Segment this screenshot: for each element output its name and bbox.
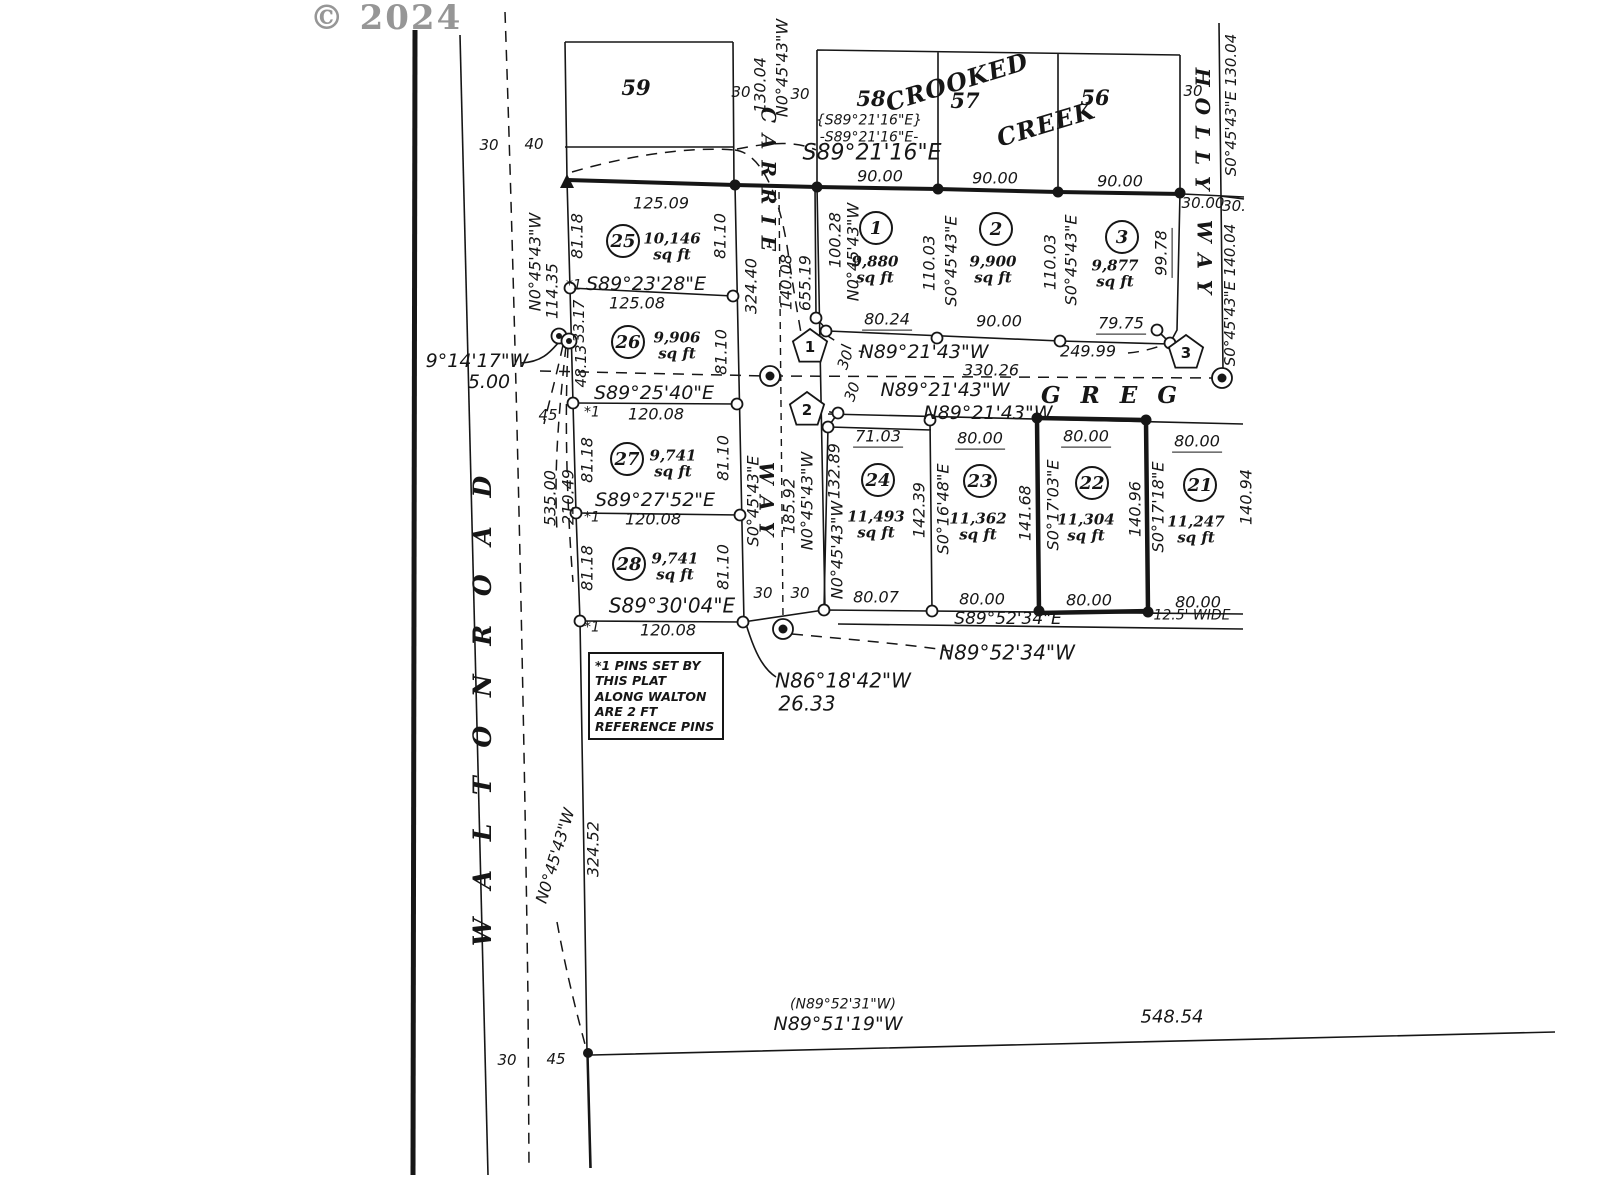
bearing-leader-south [792, 634, 950, 651]
lot-27-number: 27 [610, 442, 644, 476]
label-big2-131: N86°18'42"W [775, 671, 911, 692]
leader-n861842 [746, 624, 776, 677]
label-smi-135: (N89°52'31"W) [790, 998, 896, 1013]
label-big2-120: S89°30'04"E [609, 596, 735, 617]
label-brg-126: 5.00 [468, 373, 510, 393]
label-dimu-61: 80.00 [1061, 429, 1111, 448]
note-line: *1 PINS SET BY [595, 658, 717, 673]
lot-3-area: 9,877 sq ft [1092, 258, 1139, 290]
label-dim-111: 81.18 [580, 437, 597, 483]
label-dim-46: 90.00 [976, 314, 1022, 331]
label-sm-18: 30 [731, 85, 750, 101]
label-brg-102: S89°23'28"E [586, 275, 706, 295]
lot-24-number: 24 [861, 463, 895, 497]
label-dimu-62: 80.00 [1172, 434, 1222, 453]
label-dim15-28: S0°45'43"E 140.04 [1223, 224, 1239, 367]
label-dim-70: S0°17'18"E [1151, 462, 1168, 553]
curve-marker-3: 3 [1181, 346, 1191, 362]
label-dim-86: 140.94 [1239, 469, 1256, 525]
label-dim-107: 81.10 [714, 329, 731, 375]
label-smi-116: *1 [584, 511, 600, 526]
label-dim18-137: 548.54 [1141, 1009, 1204, 1028]
label-dim-114: 210.49 [561, 469, 578, 525]
label-dim-50: 330.26 [963, 363, 1019, 380]
plat-map-page: © 2024304059585756CROOKEDCREEK{S89°21'16… [0, 0, 1600, 1200]
label-brg17-83: S89°52'34"E [954, 611, 1061, 629]
label-dim-104: 125.08 [609, 296, 665, 313]
label-dim-38: 100.28 [828, 212, 845, 268]
lot-28-area: 9,741 sq ft [652, 551, 699, 583]
label-dim-87: S0°45'43"E [746, 456, 763, 547]
label-dim-101: 81.10 [713, 213, 730, 259]
label-dim-119: 81.10 [716, 544, 733, 590]
label-dim-69: 140.96 [1128, 481, 1145, 537]
label-dimu-45: 80.24 [862, 312, 912, 331]
label-dim-14: 90.00 [972, 171, 1018, 188]
label-dim15-26: 30.00 [1182, 196, 1225, 212]
label-dimu-60: 80.00 [955, 431, 1005, 450]
label-dim-49: 249.99 [1060, 344, 1116, 361]
label-dim-43: S0°45'43"E [1064, 215, 1081, 306]
label-dim15-106: 48.13 [574, 345, 590, 388]
label-dim-29: 324.40 [744, 258, 761, 314]
label-brg-53: N89°21'43"W [924, 404, 1053, 424]
label-dim-40: 110.03 [922, 235, 939, 291]
lot-23-area: 11,362 sq ft [949, 511, 1006, 543]
note-box: *1 PINS SET BY THIS PLAT ALONG WALTON AR… [588, 652, 724, 740]
label-dim-41: S0°45'43"E [944, 216, 961, 307]
label-dim-110: 120.08 [628, 407, 684, 424]
lot-2-area: 9,900 sq ft [970, 254, 1017, 286]
label-smi-121: *1 [584, 621, 600, 636]
label-sm-19: 30 [790, 87, 809, 103]
label-dim-64: N0°45'43"W [830, 501, 847, 599]
lot-21-number: 21 [1183, 468, 1217, 502]
label-brg-108: S89°25'40"E [594, 384, 714, 404]
label-dimu-59: 71.03 [853, 429, 903, 448]
label-smi-84: 12.5' WIDE [1153, 609, 1230, 624]
label-smi-109: *1 [584, 406, 600, 421]
note-line: ARE 2 FT [595, 704, 717, 719]
lot-27-area: 9,741 sq ft [650, 448, 697, 480]
street-walton-road: W A L T O N R O A D [470, 466, 496, 946]
lot-24-area: 11,493 sq ft [847, 509, 904, 541]
label-dim-15: 90.00 [1097, 174, 1143, 191]
label-dim-112: 81.10 [716, 435, 733, 481]
street-greg: G R E G [1041, 384, 1183, 408]
label-dim-130: 324.52 [586, 821, 603, 877]
street-carrie: C A R R I E [758, 107, 779, 253]
note-line: ALONG WALTON [595, 689, 717, 704]
label-dim-118: 81.18 [580, 545, 597, 591]
copyright-watermark: © 2024 [310, 1, 462, 37]
label-sm-1: 30 [479, 138, 498, 154]
label-dim-67: 141.68 [1018, 485, 1035, 541]
lot-58-number: 58 [856, 88, 885, 110]
label-dim-30: 140.08 [779, 254, 796, 310]
label-dim15-105: 33.17 [572, 300, 588, 343]
walton-road-centerline [505, 12, 529, 1168]
label-dim-39: N0°45'43"W [846, 203, 863, 301]
lot-1-number: 1 [859, 211, 893, 245]
label-smi-103: *1 [566, 279, 582, 294]
label-dim-117: 120.08 [625, 512, 681, 529]
note-line: REFERENCE PINS [595, 719, 717, 734]
label-dim-31: 655.19 [798, 255, 815, 311]
creek-dashed-1 [572, 149, 735, 172]
lot-59-number: 59 [621, 77, 650, 99]
label-dim-16: 130.04 [753, 57, 770, 113]
walton-road-west-edge [413, 30, 415, 1175]
label-brg-51: N89°21'43"W [881, 381, 1010, 401]
label-dimu-44: 99.78 [1154, 228, 1173, 278]
label-dimu-47: 79.75 [1096, 316, 1146, 335]
label-dim-42: 110.03 [1043, 234, 1060, 290]
label-big-11: S89°21'16"E [802, 141, 941, 164]
label-dim15-27: 30. [1222, 199, 1246, 215]
label-dim-100: 81.18 [570, 213, 587, 259]
lot-28-number: 28 [612, 547, 646, 581]
lot-23-number: 23 [963, 464, 997, 498]
label-dim15-25: S0°45'43"E 130.04 [1224, 34, 1240, 177]
label-sm-91: 30 [790, 586, 809, 602]
curve-marker-1: 1 [805, 340, 815, 356]
curve-marker-2: 2 [802, 403, 812, 419]
label-brg-136: N89°51'19"W [774, 1015, 903, 1035]
lot-22-area: 11,304 sq ft [1057, 512, 1114, 544]
street-holly-way: W A Y [1194, 220, 1215, 296]
lot-2-number: 2 [979, 212, 1013, 246]
lot-59-outline [565, 42, 734, 186]
label-sm-24: 30 [1183, 84, 1202, 100]
label-big2-132: 26.33 [778, 694, 835, 715]
label-dim-122: 120.08 [640, 623, 696, 640]
label-sm-134: 45 [546, 1052, 565, 1068]
label-dim-123: 114.35 [545, 263, 562, 319]
label-dim-89: N0°45'43"W [800, 452, 817, 550]
label-sm-90: 30 [753, 586, 772, 602]
lot-22-number: 22 [1075, 466, 1109, 500]
curve3-leader [1128, 345, 1163, 353]
label-dim-113: 535.00 [543, 470, 560, 526]
lot-26-area: 9,906 sq ft [654, 330, 701, 362]
label-dim-88: 185.92 [782, 478, 799, 534]
label-dim-13: 90.00 [857, 169, 903, 186]
label-dim-12: 125.09 [633, 196, 689, 213]
west-boundary-leader [557, 922, 586, 1048]
label-dim-79: 80.07 [853, 590, 899, 607]
label-sm-2: 40 [524, 137, 543, 153]
label-brg-115: S89°27'52"E [595, 491, 715, 511]
note-line: THIS PLAT [595, 673, 717, 688]
label-dim-124: N0°45'43"W [528, 213, 545, 311]
label-dim-80: 80.00 [959, 592, 1005, 609]
label-dim-17: N0°45'43"W [775, 19, 792, 117]
lot-25-number: 25 [606, 224, 640, 258]
label-big2-85: N89°52'34"W [939, 643, 1075, 664]
label-sm-133: 30 [497, 1053, 516, 1069]
label-sm-127: 45 [538, 408, 557, 424]
label-brg-125: 9°14'17"W [426, 352, 529, 372]
lot-26-number: 26 [611, 325, 645, 359]
lot-3-number: 3 [1105, 220, 1139, 254]
label-dim-63: 132.89 [827, 443, 844, 499]
lot-25-area: 10,146 sq ft [643, 231, 700, 263]
south-plat-boundary [588, 1032, 1555, 1168]
label-dim-65: 142.39 [912, 482, 929, 538]
lot-21-area: 11,247 sq ft [1167, 514, 1224, 546]
label-smi-9: {S89°21'16"E} [816, 114, 922, 129]
label-dim-81: 80.00 [1066, 593, 1112, 610]
